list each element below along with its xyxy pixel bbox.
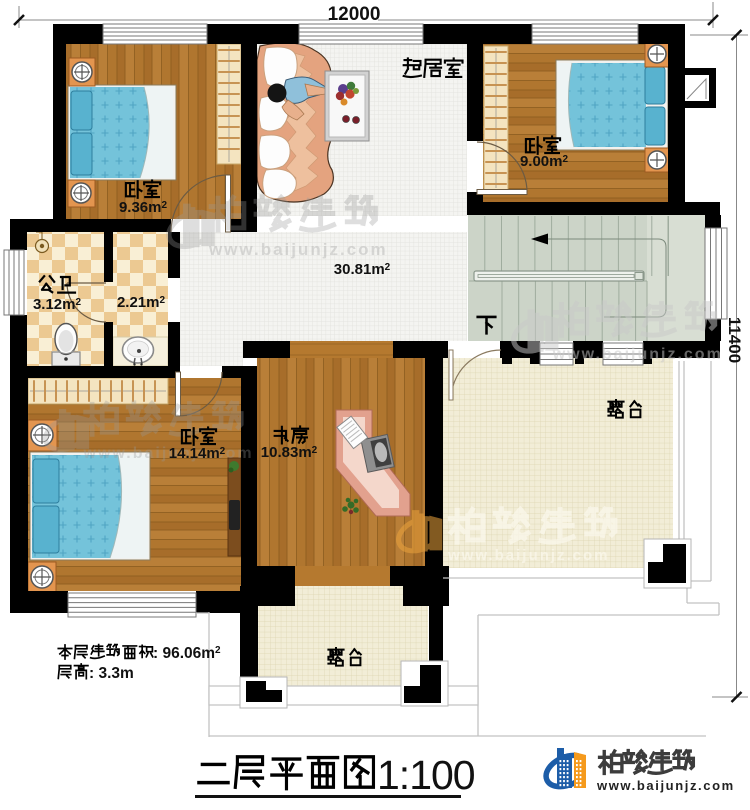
svg-text:: 96.06m2: : 96.06m2 — [153, 645, 221, 662]
svg-text:2.21m2: 2.21m2 — [117, 294, 166, 311]
svg-text:www.baijunjz.com: www.baijunjz.com — [552, 346, 723, 363]
svg-text:12000: 12000 — [328, 4, 381, 25]
svg-text:www.baijunjz.com: www.baijunjz.com — [596, 778, 735, 793]
svg-text:11400: 11400 — [725, 317, 744, 363]
svg-text:: 3.3m: : 3.3m — [89, 665, 134, 682]
svg-text:9.00m2: 9.00m2 — [520, 153, 569, 170]
svg-text:3.12m2: 3.12m2 — [33, 296, 82, 313]
svg-text:1:100: 1:100 — [377, 752, 475, 798]
svg-text:9.36m2: 9.36m2 — [119, 199, 168, 216]
svg-text:10.83m2: 10.83m2 — [261, 444, 318, 461]
svg-text:www.baijunjz.com: www.baijunjz.com — [208, 240, 388, 259]
svg-text:www.baijunjz.com: www.baijunjz.com — [447, 547, 609, 564]
svg-text:14.14m2: 14.14m2 — [169, 445, 226, 462]
svg-text:30.81m2: 30.81m2 — [334, 261, 391, 278]
